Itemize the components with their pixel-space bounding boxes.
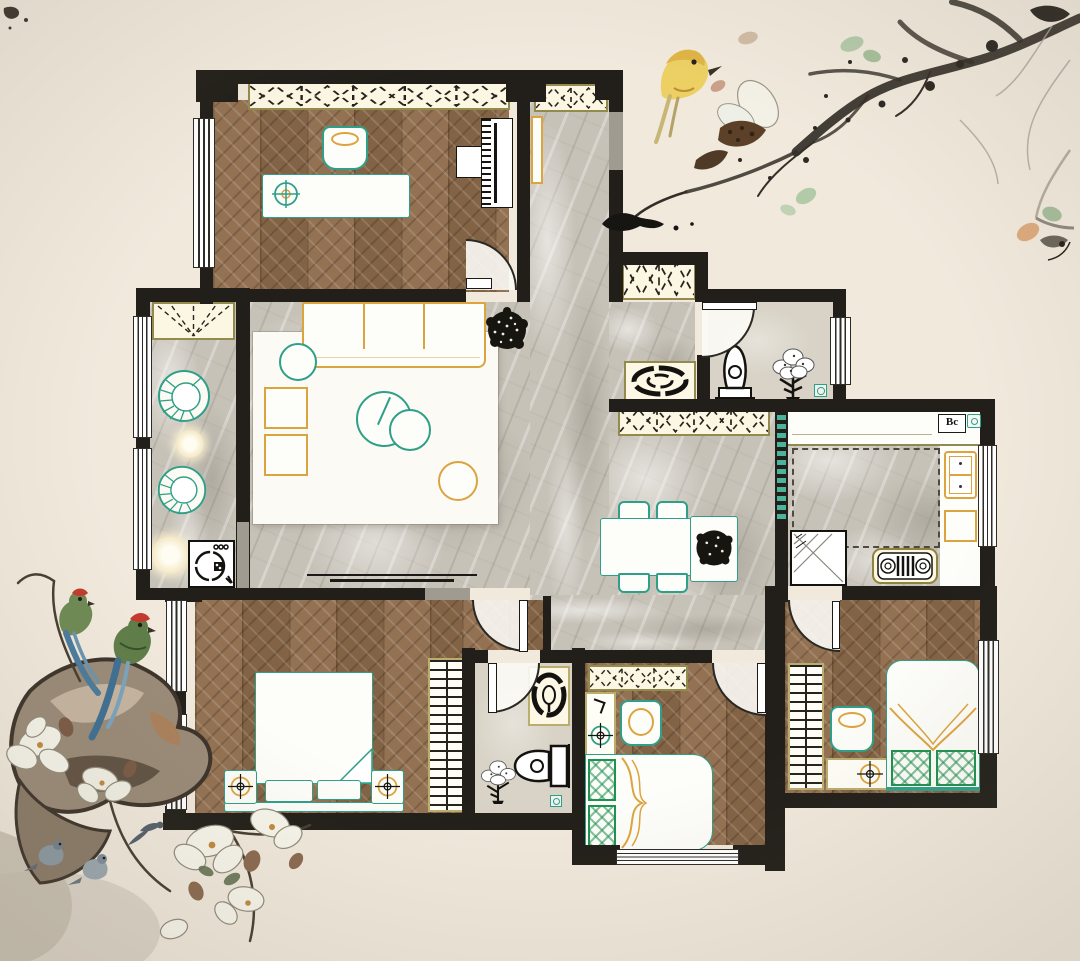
water-heater-label: Bc [938,414,966,433]
master-headboard-cushion-2 [317,780,361,800]
ottoman [438,461,478,501]
wall [163,813,475,830]
rattan-chair-1 [156,368,212,424]
wall [695,289,846,302]
washing-machine [188,540,235,588]
lower-corridor-floor [530,595,775,650]
balcony-west-window-1 [133,316,152,438]
study-wardrobe [248,82,510,110]
wall [462,648,475,830]
ceiling-lamp-icon [270,178,302,210]
wall [609,399,995,412]
hall-bathroom-window [830,317,851,385]
door-frame-post [543,596,551,654]
balcony-west-window-2 [133,448,152,570]
dining-chair-4 [656,573,688,593]
south-bedroom-wardrobe [588,665,688,691]
balcony-floor-lamp [151,536,189,574]
wall [572,650,712,663]
east-bedroom-door-leaf [832,601,840,649]
dining-chair-3 [618,573,650,593]
balcony-curtain-box [152,302,235,340]
east-bed-blanket [888,700,978,752]
kitchen-counter-block [944,510,977,542]
front-door [609,112,623,170]
entry-console [531,116,543,184]
refrigerator [790,530,847,586]
plant-stand [690,516,738,582]
sofa [302,302,486,368]
master-headboard-cushion-1 [265,780,313,802]
east-bed-pillow-2 [936,750,976,786]
wall [833,289,846,319]
balcony-tea-table [176,430,204,458]
door-frame [237,522,249,588]
living-plant-icon [483,306,531,354]
potted-plant-icon [476,756,520,804]
wall [609,70,623,302]
wall [609,252,708,265]
coffee-table-small [389,409,431,451]
wall [517,70,530,302]
wall [196,70,622,84]
tv-screen [330,579,454,582]
east-bed-headboard [886,787,980,791]
gas-stove-icon [872,548,938,584]
floor-drain-icon [814,384,827,397]
master-bed-blanket-fold [337,748,373,784]
floorplan-canvas: Bc [0,0,1080,961]
master-bedroom-window-2 [166,714,187,810]
master-bedroom-window-1 [166,600,187,692]
inner-bathroom-door-leaf [488,663,497,713]
hall-bathroom-door-leaf [702,302,757,310]
kitchen-east-window [978,445,997,547]
dining-table [600,518,692,576]
east-bedroom-wardrobe [788,663,824,790]
nightstand-lamp-icon [374,773,401,800]
wall [136,288,250,302]
wall [766,650,785,663]
ink-speck-decoration [0,0,60,60]
south-bed-blanket [616,756,668,850]
east-bedroom-window [978,640,999,754]
tv-bench [307,574,477,576]
east-bed-pillow-1 [891,750,931,786]
wall [200,70,213,120]
south-bed-pillow-1 [588,759,616,801]
wall [765,586,785,871]
sofa-round-cushion [279,343,317,381]
wall [765,793,997,808]
potted-plant-icon [768,343,818,401]
wall [462,650,488,663]
floor-drain-icon [550,795,562,807]
piano-bench [456,146,482,178]
wall [165,688,186,716]
south-chair-cushion [628,708,654,736]
ceiling-lamp-icon [587,722,614,749]
wall [980,399,995,447]
east-chair-cushion [838,712,866,728]
toilet-icon [513,744,573,788]
south-bedroom-window [616,849,739,865]
wall [842,586,995,600]
ceiling-lamp-icon [856,760,884,788]
piano [481,118,513,208]
wall [572,648,585,865]
gas-valve-icon [967,414,981,428]
side-table-1 [264,387,308,429]
wall [733,845,785,865]
master-wardrobe [428,658,466,812]
tv-wall-niche [425,588,470,600]
kitchen-sink [944,451,977,499]
wall [980,586,997,642]
rattan-chair-2 [156,464,208,516]
nightstand-lamp-icon [227,773,254,800]
ink-branch-bird-decoration [600,0,1080,270]
south-bed-pillow-2 [588,805,616,847]
master-bedroom-door-leaf [519,600,528,652]
study-chair-cushion [331,132,359,146]
study-door-leaf [466,278,492,289]
bath-mat [624,361,696,401]
kitchen-sliding-glass-door [777,415,786,520]
south-bedroom-door-leaf [757,663,766,713]
study-west-window [193,118,215,268]
side-table-2 [264,434,308,476]
